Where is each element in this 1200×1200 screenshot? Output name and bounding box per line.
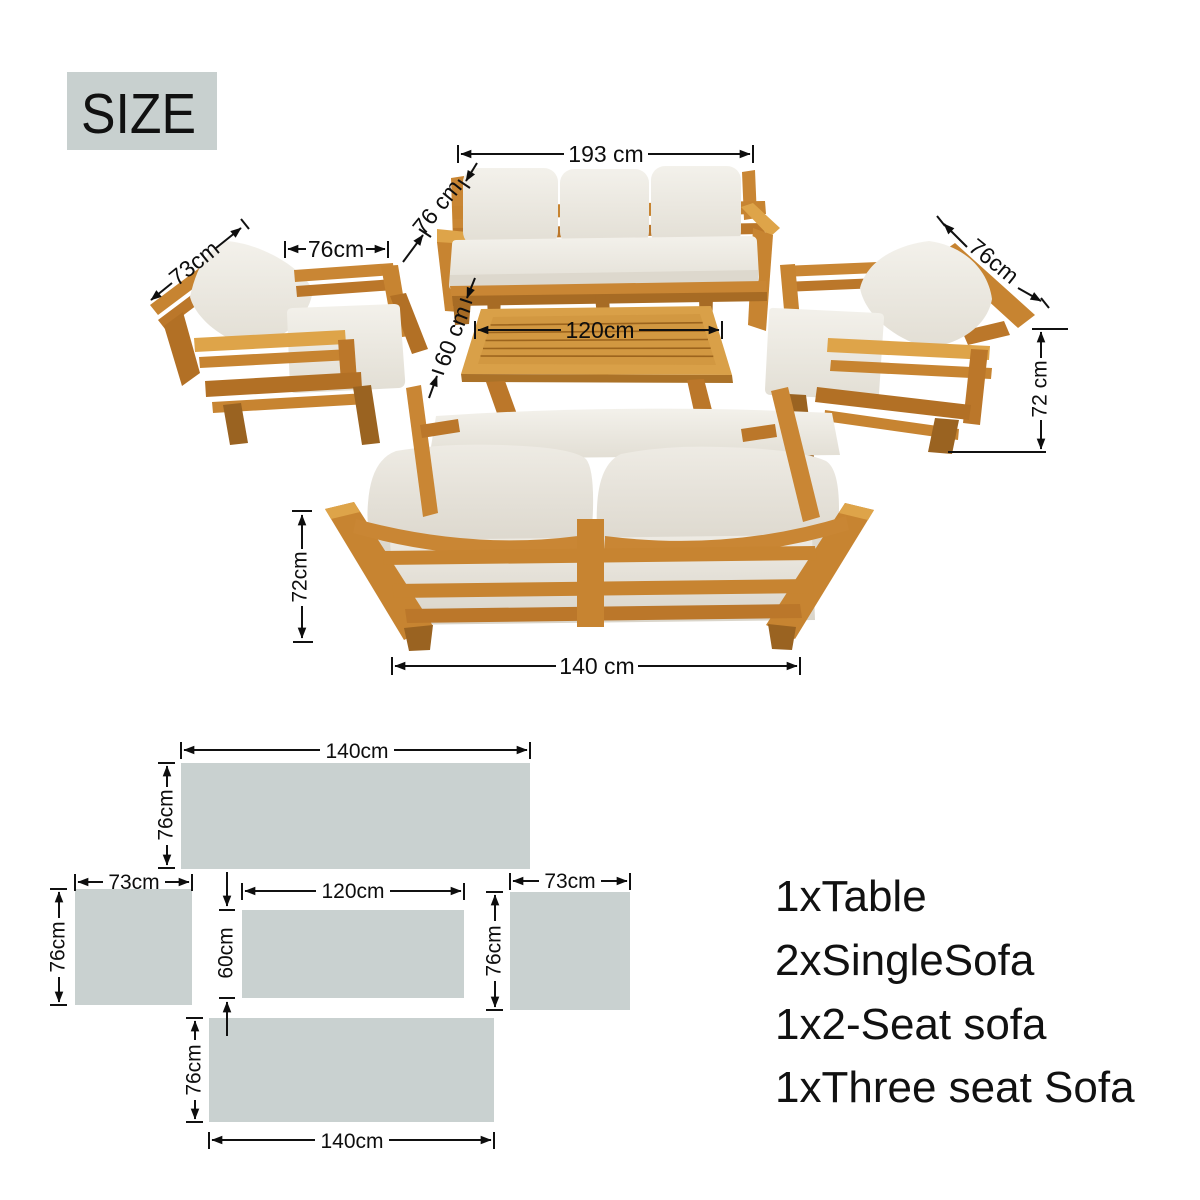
- svg-text:1xThree seat Sofa: 1xThree seat Sofa: [775, 1063, 1135, 1112]
- svg-text:76cm: 76cm: [47, 921, 70, 972]
- svg-text:140cm: 140cm: [320, 1130, 383, 1153]
- svg-text:73cm: 73cm: [544, 870, 595, 893]
- svg-text:76cm: 76cm: [308, 236, 364, 262]
- svg-text:2xSingleSofa: 2xSingleSofa: [775, 936, 1035, 985]
- svg-text:60cm: 60cm: [215, 927, 238, 978]
- svg-text:140 cm: 140 cm: [559, 653, 634, 679]
- svg-text:SIZE: SIZE: [81, 82, 196, 146]
- svg-text:76cm: 76cm: [183, 1044, 206, 1095]
- svg-text:72cm: 72cm: [289, 551, 312, 602]
- svg-text:1xTable: 1xTable: [775, 872, 927, 921]
- svg-text:73cm: 73cm: [108, 871, 159, 894]
- svg-text:193 cm: 193 cm: [568, 141, 643, 167]
- svg-text:120cm: 120cm: [321, 880, 384, 903]
- svg-text:76cm: 76cm: [155, 789, 178, 840]
- svg-text:140cm: 140cm: [325, 740, 388, 763]
- svg-text:76cm: 76cm: [483, 925, 506, 976]
- svg-text:120cm: 120cm: [565, 317, 634, 343]
- svg-text:1x2-Seat sofa: 1x2-Seat sofa: [775, 1000, 1047, 1049]
- svg-text:72 cm: 72 cm: [1029, 360, 1052, 417]
